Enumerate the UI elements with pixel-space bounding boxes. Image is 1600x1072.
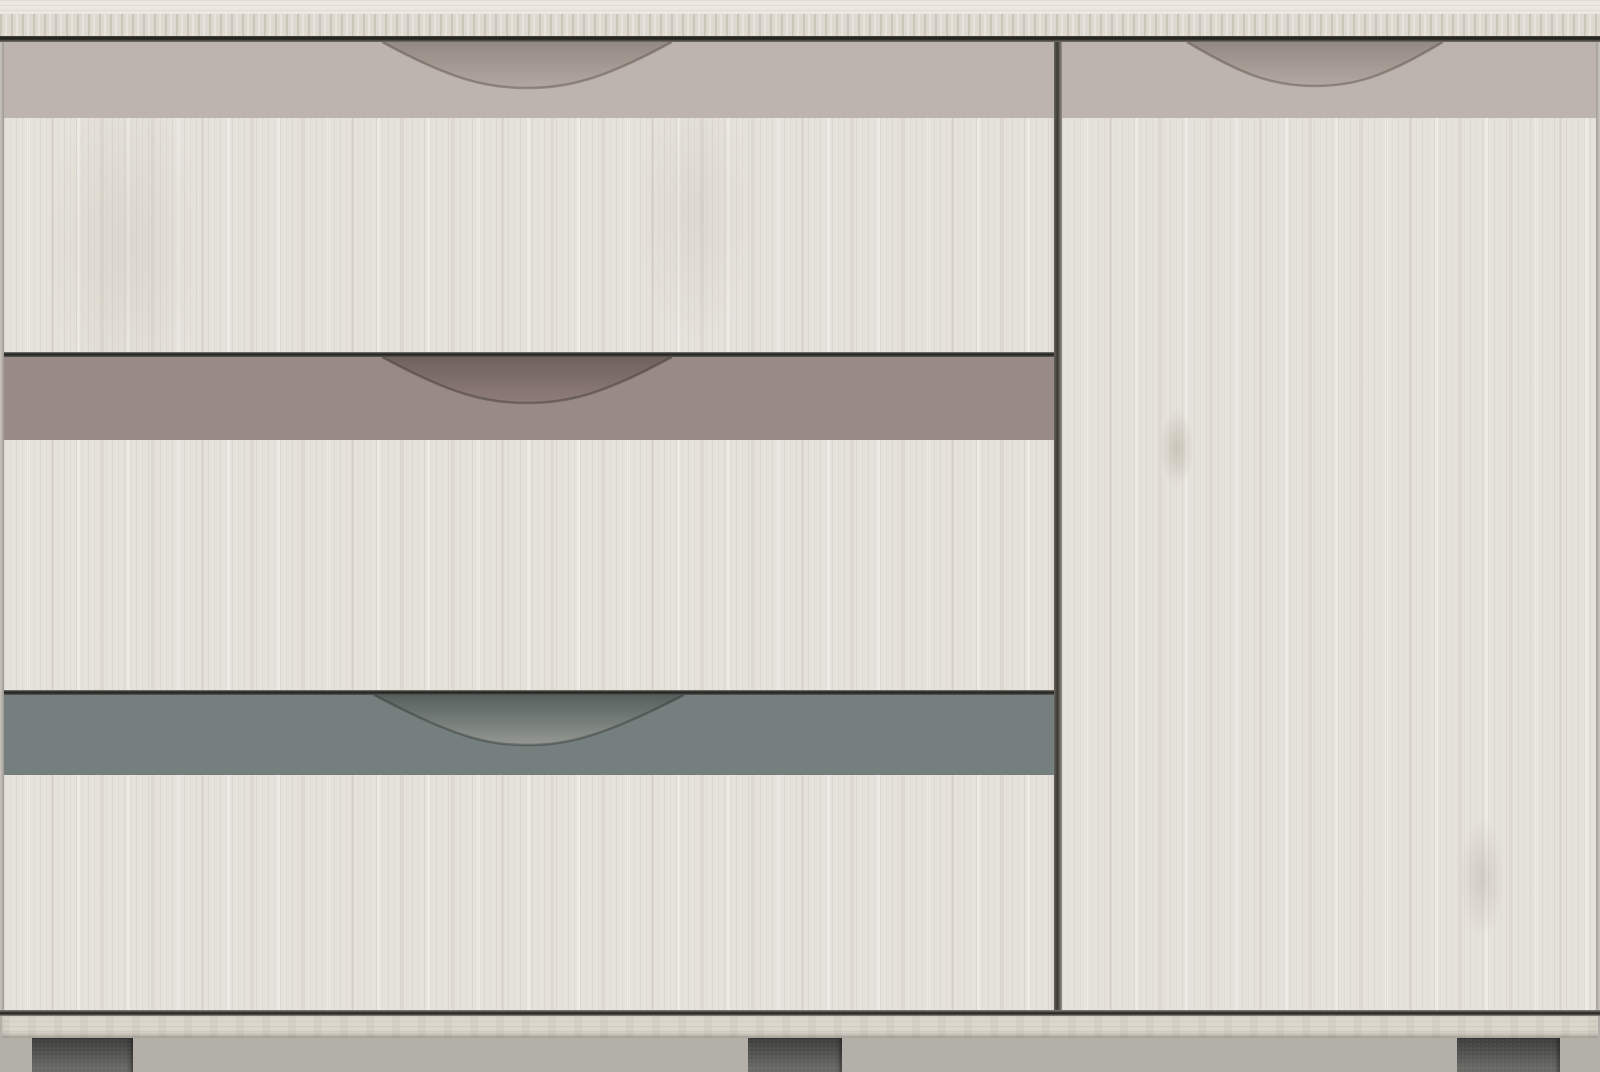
door-section [1062,42,1596,1010]
door-panel [1062,118,1596,1010]
cabinet-foot-right [1457,1038,1560,1072]
drawer-middle-front-strip [4,357,1054,440]
cabinet-body [0,42,1600,1010]
section-divider [1054,42,1062,1010]
product-image [0,0,1600,1072]
cabinet-plinth [2,1016,1598,1038]
cabinet-foot-left [32,1038,133,1072]
cabinet-right-side-edge [1596,42,1600,1010]
door-handle-recess [1062,42,1596,98]
cabinet-top-surface [0,0,1600,14]
cabinet-foot-middle [748,1038,842,1072]
cabinet-top-edge [0,14,1600,36]
drawer-top-wood-panel [4,118,1054,352]
drawer-section [4,42,1054,1010]
drawer-bottom-wood-panel [4,775,1054,1010]
drawer-middle-wood-panel [4,440,1054,690]
door-front-strip [1062,42,1596,118]
drawer-top-front-strip [4,42,1054,118]
drawer-middle-handle-recess [4,357,1054,413]
drawer-bottom-handle-recess [4,695,1054,751]
drawer-top-handle-recess [4,42,1054,98]
drawer-bottom-front-strip [4,695,1054,775]
